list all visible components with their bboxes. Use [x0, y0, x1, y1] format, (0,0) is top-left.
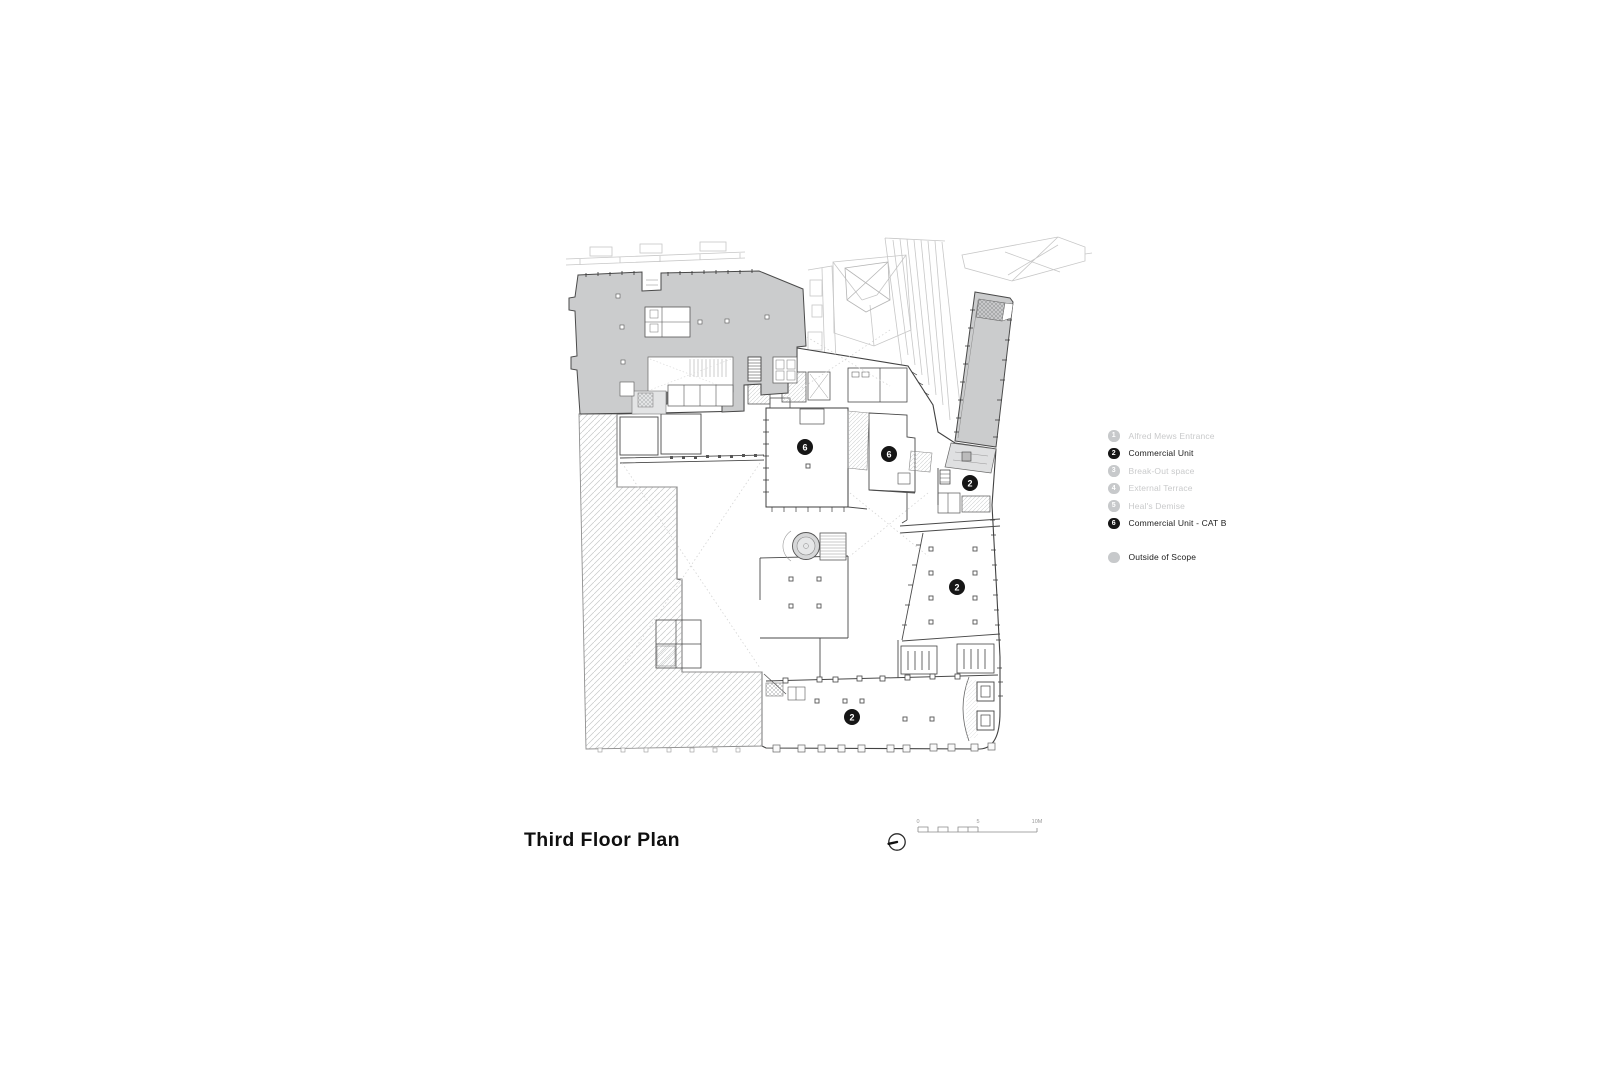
badge-6-b: 6	[881, 446, 897, 462]
badge-2-bottom: 2	[844, 709, 860, 725]
outside-scope-wing	[945, 292, 1013, 473]
badge-2-top-num: 2	[967, 479, 972, 489]
badge-2-mid-num: 2	[954, 583, 959, 593]
badge-6-b-num: 6	[886, 450, 891, 460]
badge-2-mid: 2	[949, 579, 965, 595]
scale-bar: 0 5 10M	[916, 819, 1042, 832]
legend-item-outside-of-scope: Outside of Scope	[1108, 549, 1227, 567]
page-title: Third Floor Plan	[524, 829, 680, 852]
legend-label-5: Heal's Demise	[1129, 501, 1185, 511]
legend-item-external-terrace: 4 External Terrace	[1108, 480, 1227, 498]
north-arrow	[889, 834, 906, 850]
legend-label-1: Alfred Mews Entrance	[1129, 431, 1215, 441]
legend-badge-4: 4	[1108, 483, 1120, 495]
legend-badge-2: 2	[1108, 448, 1120, 460]
legend: 1 Alfred Mews Entrance 2 Commercial Unit…	[1108, 427, 1227, 566]
legend-item-break-out-space: 3 Break-Out space	[1108, 462, 1227, 480]
outside-scope-building	[569, 269, 806, 414]
legend-label-outside-of-scope: Outside of Scope	[1129, 552, 1197, 562]
badge-6-a-num: 6	[802, 443, 807, 453]
legend-badge-5: 5	[1108, 500, 1120, 512]
legend-item-commercial-unit-cat-b: 6 Commercial Unit - CAT B	[1108, 515, 1227, 533]
legend-label-2: Commercial Unit	[1129, 448, 1194, 458]
legend-item-alfred-mews-entrance: 1 Alfred Mews Entrance	[1108, 427, 1227, 445]
legend-badge-1: 1	[1108, 430, 1120, 442]
badge-6-a: 6	[797, 439, 813, 455]
legend-badge-6: 6	[1108, 518, 1120, 530]
legend-swatch-outside-of-scope	[1108, 552, 1120, 564]
scale-label-mid: 5	[976, 819, 979, 825]
floor-plan-drawing: 6 6 2 2 2 0 5 10M	[0, 0, 1600, 1067]
badge-2-top: 2	[962, 475, 978, 491]
scale-label-zero: 0	[916, 819, 919, 825]
scale-label-end: 10M	[1032, 819, 1043, 825]
legend-item-commercial-unit: 2 Commercial Unit	[1108, 445, 1227, 463]
legend-badge-3: 3	[1108, 465, 1120, 477]
legend-label-4: External Terrace	[1129, 483, 1193, 493]
badge-2-bottom-num: 2	[849, 713, 854, 723]
wing-roof-hatch	[976, 299, 1005, 321]
legend-label-3: Break-Out space	[1129, 466, 1195, 476]
drawing-sheet: 6 6 2 2 2 0 5 10M 1 Alfred	[0, 0, 1600, 1067]
legend-label-6: Commercial Unit - CAT B	[1129, 518, 1227, 528]
legend-item-heals-demise: 5 Heal's Demise	[1108, 497, 1227, 515]
